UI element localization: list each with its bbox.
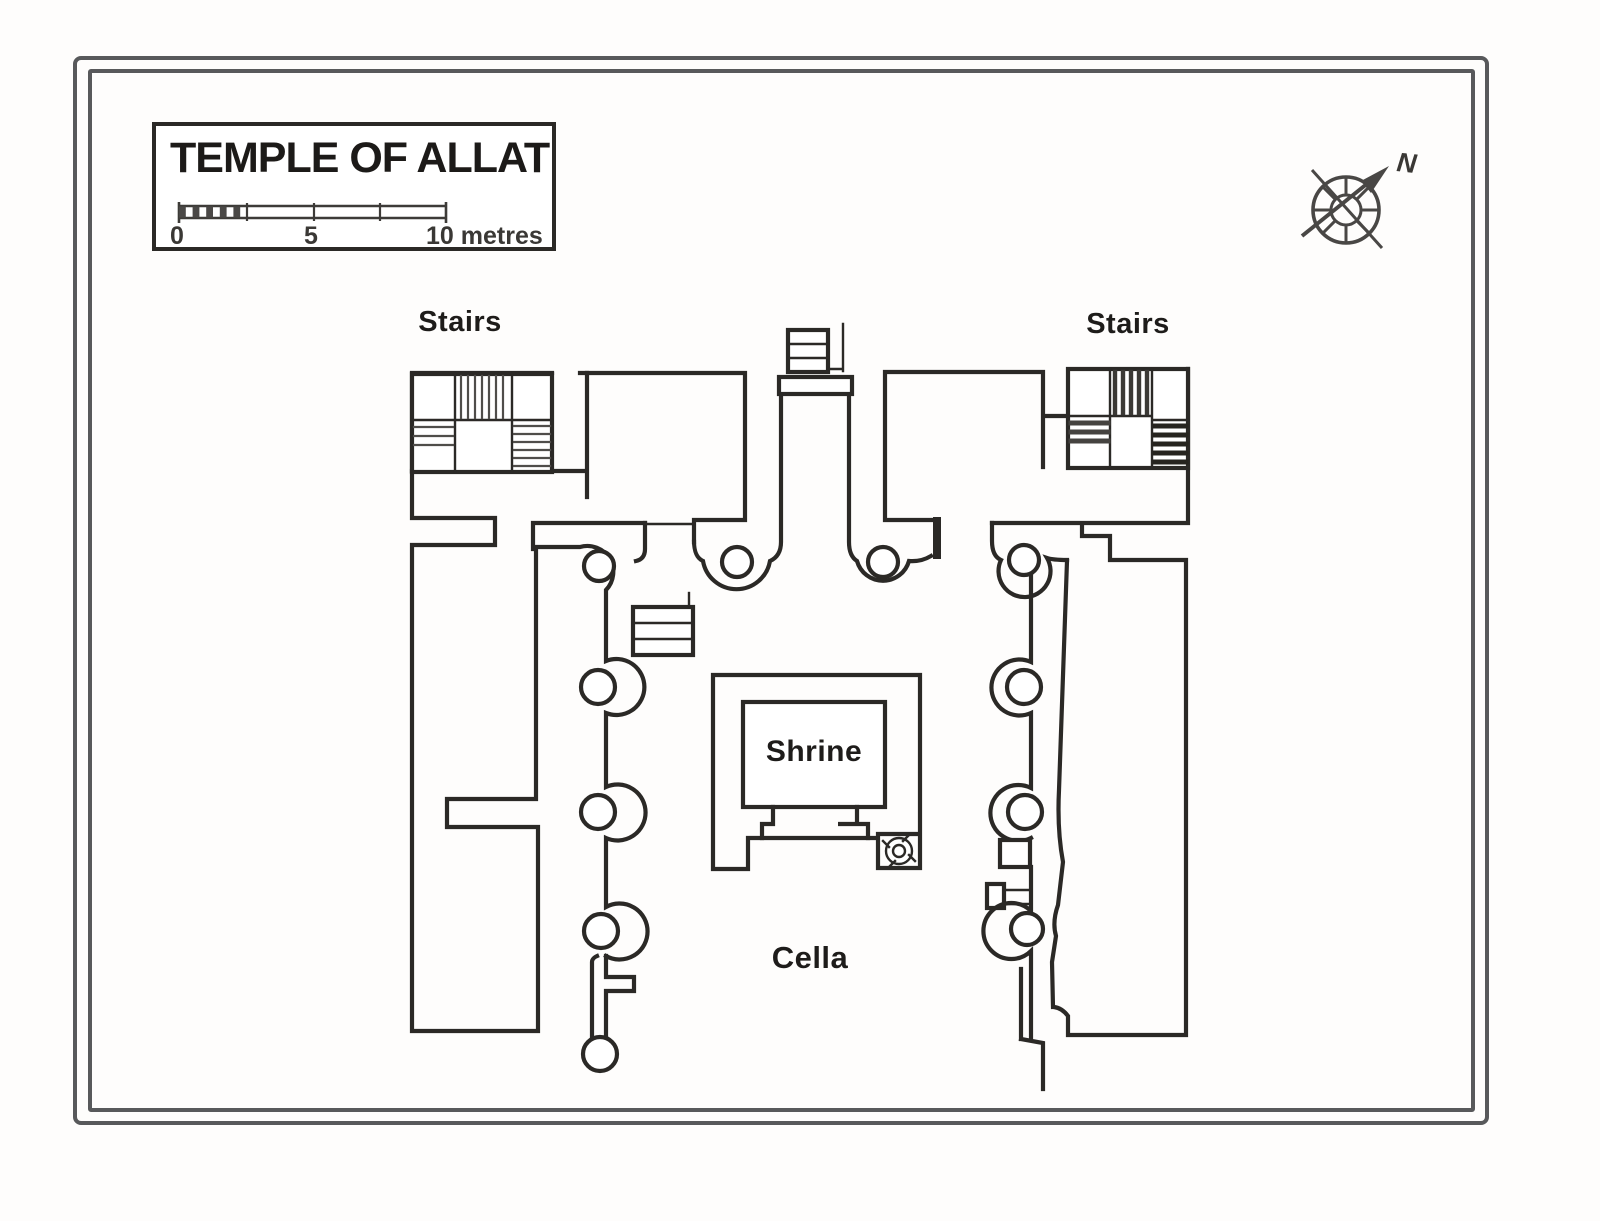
west-column-1 <box>584 551 614 581</box>
east-room-wall <box>885 372 1068 520</box>
west-column-5 <box>583 1037 617 1071</box>
scale-bar-hatch <box>179 207 240 218</box>
scale-label-five: 5 <box>304 222 318 251</box>
west-room-wall <box>580 373 745 542</box>
altar-outline <box>633 607 693 655</box>
spiral-stair-icon <box>883 835 915 867</box>
door-jamb-west <box>636 523 645 561</box>
east-colonnade <box>983 545 1043 1089</box>
label-stairs-west: Stairs <box>408 306 512 339</box>
label-stairs-east: Stairs <box>1076 308 1180 341</box>
porch-column-west <box>722 547 752 577</box>
west-stairs-treads-top <box>461 376 503 418</box>
entrance-porch <box>722 324 898 577</box>
east-outer-wall <box>1054 527 1186 1035</box>
entrance-steps <box>788 330 828 372</box>
west-column-3 <box>581 795 615 829</box>
altar <box>633 593 693 655</box>
west-stairs <box>412 374 552 472</box>
legend-box: TEMPLE OF ALLAT 0 5 10 metres <box>152 122 556 251</box>
west-colonnade <box>536 546 648 1071</box>
west-column-4 <box>584 914 618 948</box>
label-shrine: Shrine <box>744 735 884 769</box>
plan-title: TEMPLE OF ALLAT <box>170 134 549 183</box>
east-column-4 <box>1011 913 1043 945</box>
scanned-plan-page: TEMPLE OF ALLAT 0 5 10 metres <box>0 0 1600 1221</box>
north-label: N <box>1395 147 1418 179</box>
east-column-1 <box>1009 545 1039 575</box>
west-colonnade-south-wall <box>592 956 634 1036</box>
compass-rose-icon: N <box>1268 133 1438 263</box>
east-colonnade-pier <box>1000 840 1030 867</box>
west-colonnade-wall <box>536 546 648 960</box>
east-inner-wall <box>1052 561 1067 1007</box>
east-column-2 <box>1007 670 1041 704</box>
label-cella: Cella <box>750 940 870 976</box>
shrine-entrance-steps <box>762 807 868 838</box>
scale-label-ten: 10 metres <box>426 222 543 251</box>
west-column-2 <box>581 670 615 704</box>
scale-label-zero: 0 <box>170 222 184 251</box>
east-column-3 <box>1008 795 1042 829</box>
entrance-platform <box>779 377 852 394</box>
porch-column-east <box>868 547 898 577</box>
east-stairs <box>1068 369 1188 468</box>
shrine <box>713 675 920 869</box>
